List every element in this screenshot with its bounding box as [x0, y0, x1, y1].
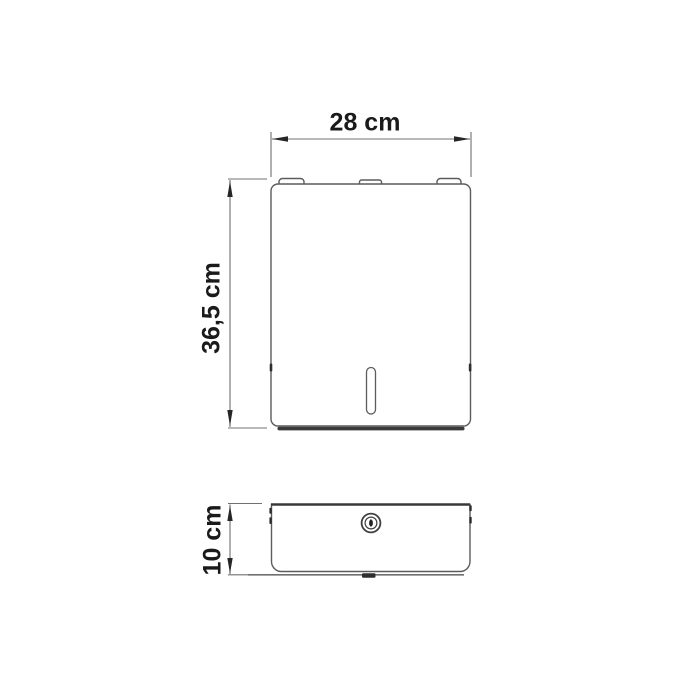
front-paper-slot: [367, 368, 376, 415]
bottom-side-latch-right-2: [469, 517, 471, 524]
height-arrow-bottom: [227, 410, 232, 426]
bottom-side-latch-left-1: [269, 508, 271, 514]
width-arrow-right: [454, 136, 470, 141]
height-arrow-top: [227, 181, 232, 197]
front-view: [270, 179, 472, 431]
lock-keyhole-icon: [362, 514, 381, 533]
depth-arrow-top: [227, 506, 232, 522]
width-dimension-label: 28 cm: [330, 111, 401, 136]
dimension-diagram: 28 cm 36,5 cm 10 cm: [0, 0, 700, 700]
height-dimension-label: 36,5 cm: [200, 262, 225, 354]
bottom-side-latch-left-2: [269, 517, 271, 524]
front-side-latch-left: [270, 364, 273, 372]
depth-dimension-label: 10 cm: [201, 505, 226, 576]
front-bottom-tray-edge: [278, 427, 465, 431]
front-side-latch-right: [469, 364, 472, 372]
bottom-center-tab: [362, 573, 376, 578]
height-dimension: [227, 179, 267, 428]
width-arrow-left: [272, 136, 288, 141]
bottom-side-latch-right-1: [469, 505, 471, 511]
bottom-view: [248, 505, 472, 578]
lock-keyhole: [369, 519, 373, 526]
depth-dimension: [227, 504, 268, 575]
depth-arrow-bottom: [227, 558, 232, 574]
diagram-linework: [0, 0, 700, 700]
width-dimension: [271, 132, 471, 177]
